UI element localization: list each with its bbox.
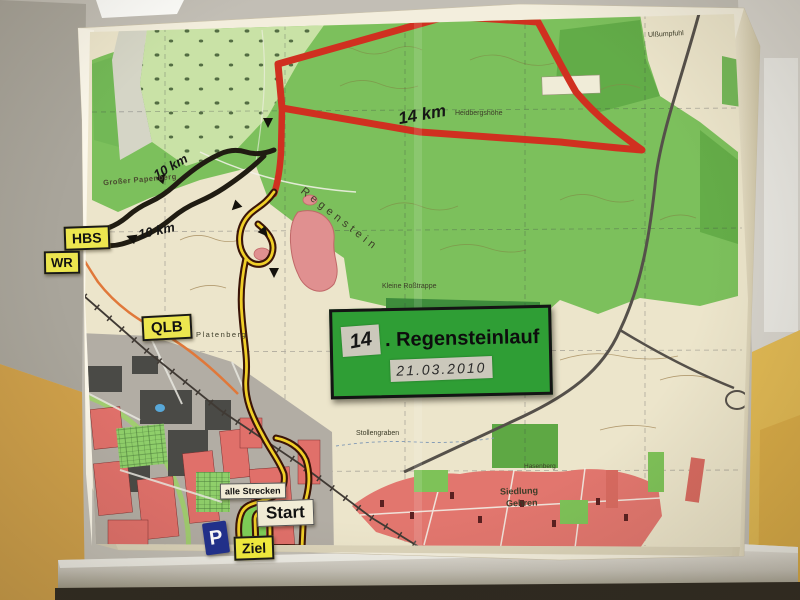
event-date: 21.03.2010 xyxy=(396,359,487,378)
sign-ziel-text: Ziel xyxy=(242,540,267,557)
label-platenberg: Platenberg xyxy=(196,331,247,339)
label-siedlung: Siedlung xyxy=(500,486,538,496)
sign-parking-text: P xyxy=(208,526,224,551)
sign-hbs: HBS xyxy=(64,225,110,251)
sign-qlb: QLB xyxy=(141,314,192,342)
event-sign-title-row: 14 . Regensteinlauf xyxy=(342,322,540,356)
sign-hbs-text: HBS xyxy=(72,229,102,246)
sign-ziel: Ziel xyxy=(234,535,275,560)
event-title: . Regensteinlauf xyxy=(385,325,540,351)
label-stollengraben: Stollengraben xyxy=(356,430,399,437)
sign-alle-strecken-text: alle Strecken xyxy=(225,486,281,497)
map-artwork xyxy=(0,0,800,600)
sign-wr: WR xyxy=(44,251,80,275)
sign-wr-text: WR xyxy=(51,255,73,270)
event-sign: 14 . Regensteinlauf 21.03.2010 xyxy=(329,305,553,400)
label-heidbergshoehe: Heidbergshöhe xyxy=(455,110,502,117)
sign-alle-strecken: alle Strecken xyxy=(220,482,286,499)
sign-start-text: Start xyxy=(266,502,305,523)
label-gehren: Gehren xyxy=(506,498,538,508)
photo-of-race-map: 14 km 10 km 10 km Großer Papenberg Regen… xyxy=(0,0,800,600)
sign-parking: P xyxy=(202,520,230,555)
sign-qlb-text: QLB xyxy=(151,318,184,337)
event-number-tape: 14 xyxy=(341,324,381,357)
label-kleine-rosstrappe: Kleine Roßtrappe xyxy=(382,283,436,290)
sign-start: Start xyxy=(257,499,315,527)
event-number: 14 xyxy=(348,327,374,354)
paper-crease xyxy=(414,14,422,548)
event-date-tape: 21.03.2010 xyxy=(390,356,493,382)
label-hasenberg: Hasenberg xyxy=(524,464,556,471)
